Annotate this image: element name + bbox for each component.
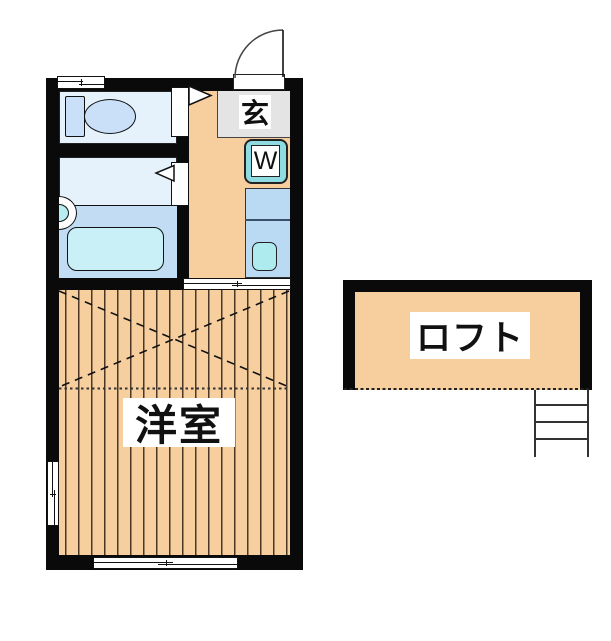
washing-machine-label: W <box>251 145 280 177</box>
floor-plan: 玄 W 洋室 ロフト <box>0 0 611 641</box>
entrance-door-opening <box>233 74 285 90</box>
kitchen-sink-icon <box>252 242 277 271</box>
bathroom-door <box>171 162 189 206</box>
entrance-label: 玄 <box>239 95 271 129</box>
bathtub-icon <box>67 227 164 271</box>
bottom-window <box>93 557 238 569</box>
toilet-icon <box>65 96 85 137</box>
western-room-label: 洋室 <box>123 398 235 447</box>
room-sliding-door <box>183 278 291 290</box>
left-window <box>47 461 59 526</box>
toilet-door <box>171 87 189 137</box>
loft-label: ロフト <box>410 312 530 359</box>
toilet-bowl-icon <box>84 99 136 134</box>
entrance-door-arc <box>235 30 283 78</box>
toilet-window <box>57 76 105 89</box>
kitchen-counter-divider <box>245 219 290 221</box>
ladder-icon <box>535 390 588 457</box>
